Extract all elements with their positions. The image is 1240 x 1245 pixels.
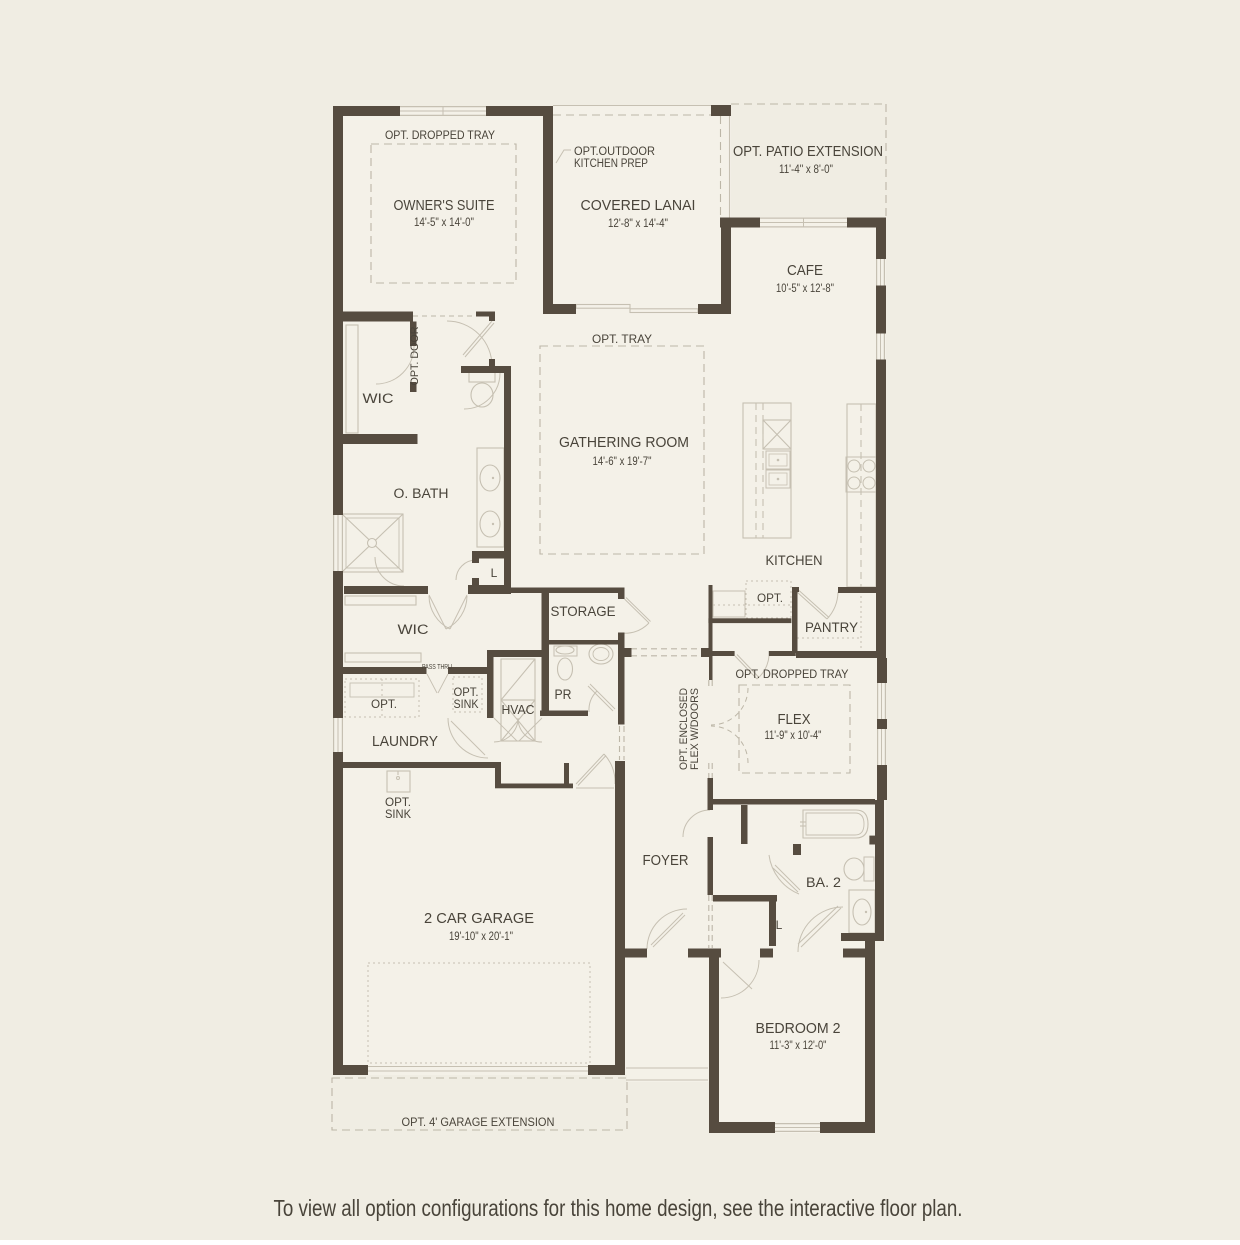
svg-text:FLEX: FLEX — [778, 711, 811, 728]
svg-text:O. BATH: O. BATH — [394, 486, 449, 501]
svg-text:10'-5" x 12'-8": 10'-5" x 12'-8" — [776, 283, 834, 295]
svg-text:L: L — [776, 918, 783, 932]
svg-text:STORAGE: STORAGE — [551, 603, 616, 619]
svg-text:SINK: SINK — [454, 699, 479, 711]
svg-text:KITCHEN: KITCHEN — [766, 552, 823, 568]
svg-text:14'-5" x 14'-0": 14'-5" x 14'-0" — [414, 217, 474, 229]
svg-text:To view all option configurati: To view all option configurations for th… — [274, 1195, 963, 1221]
svg-text:OPT.OUTDOOR: OPT.OUTDOOR — [574, 146, 655, 158]
svg-text:11'-3" x 12'-0": 11'-3" x 12'-0" — [770, 1040, 827, 1052]
svg-text:KITCHEN PREP: KITCHEN PREP — [574, 158, 648, 170]
svg-text:2 CAR GARAGE: 2 CAR GARAGE — [424, 910, 534, 927]
svg-text:L: L — [491, 566, 498, 580]
svg-text:OPT. 4' GARAGE EXTENSION: OPT. 4' GARAGE EXTENSION — [402, 1115, 555, 1129]
svg-text:OPT.: OPT. — [454, 687, 479, 699]
svg-text:PR: PR — [555, 687, 572, 702]
svg-text:11'-4" x 8'-0": 11'-4" x 8'-0" — [779, 164, 833, 176]
svg-text:OPT.: OPT. — [385, 797, 411, 809]
svg-text:OPT.: OPT. — [757, 593, 783, 605]
svg-text:OPT. TRAY: OPT. TRAY — [592, 332, 652, 346]
svg-text:OPT.: OPT. — [371, 699, 397, 711]
svg-text:19'-10" x 20'-1": 19'-10" x 20'-1" — [449, 931, 513, 943]
svg-text:FOYER: FOYER — [643, 853, 689, 869]
svg-text:GATHERING ROOM: GATHERING ROOM — [559, 434, 689, 451]
svg-text:OPT. PATIO EXTENSION: OPT. PATIO EXTENSION — [733, 143, 883, 160]
svg-text:PANTRY: PANTRY — [805, 619, 859, 635]
svg-text:OWNER'S SUITE: OWNER'S SUITE — [394, 197, 495, 214]
svg-text:LAUNDRY: LAUNDRY — [372, 733, 438, 750]
svg-text:PASS THRU: PASS THRU — [422, 662, 452, 671]
svg-text:HVAC: HVAC — [502, 703, 535, 717]
svg-text:OPT. DROPPED TRAY: OPT. DROPPED TRAY — [736, 667, 849, 681]
svg-text:FLEX W/DOORS: FLEX W/DOORS — [689, 688, 701, 770]
svg-text:WIC: WIC — [363, 391, 394, 406]
svg-text:OPT. DOOR: OPT. DOOR — [409, 326, 421, 385]
svg-text:CAFE: CAFE — [787, 263, 823, 279]
svg-text:BA. 2: BA. 2 — [806, 875, 841, 890]
svg-text:BEDROOM 2: BEDROOM 2 — [756, 1020, 841, 1037]
svg-text:COVERED LANAI: COVERED LANAI — [581, 197, 696, 214]
svg-text:WIC: WIC — [398, 622, 429, 637]
svg-text:12'-8" x 14'-4": 12'-8" x 14'-4" — [608, 218, 668, 230]
svg-text:11'-9" x 10'-4": 11'-9" x 10'-4" — [765, 730, 822, 742]
svg-text:SINK: SINK — [385, 809, 411, 821]
svg-text:OPT. DROPPED TRAY: OPT. DROPPED TRAY — [385, 128, 495, 142]
svg-text:14'-6" x 19'-7": 14'-6" x 19'-7" — [593, 456, 652, 468]
